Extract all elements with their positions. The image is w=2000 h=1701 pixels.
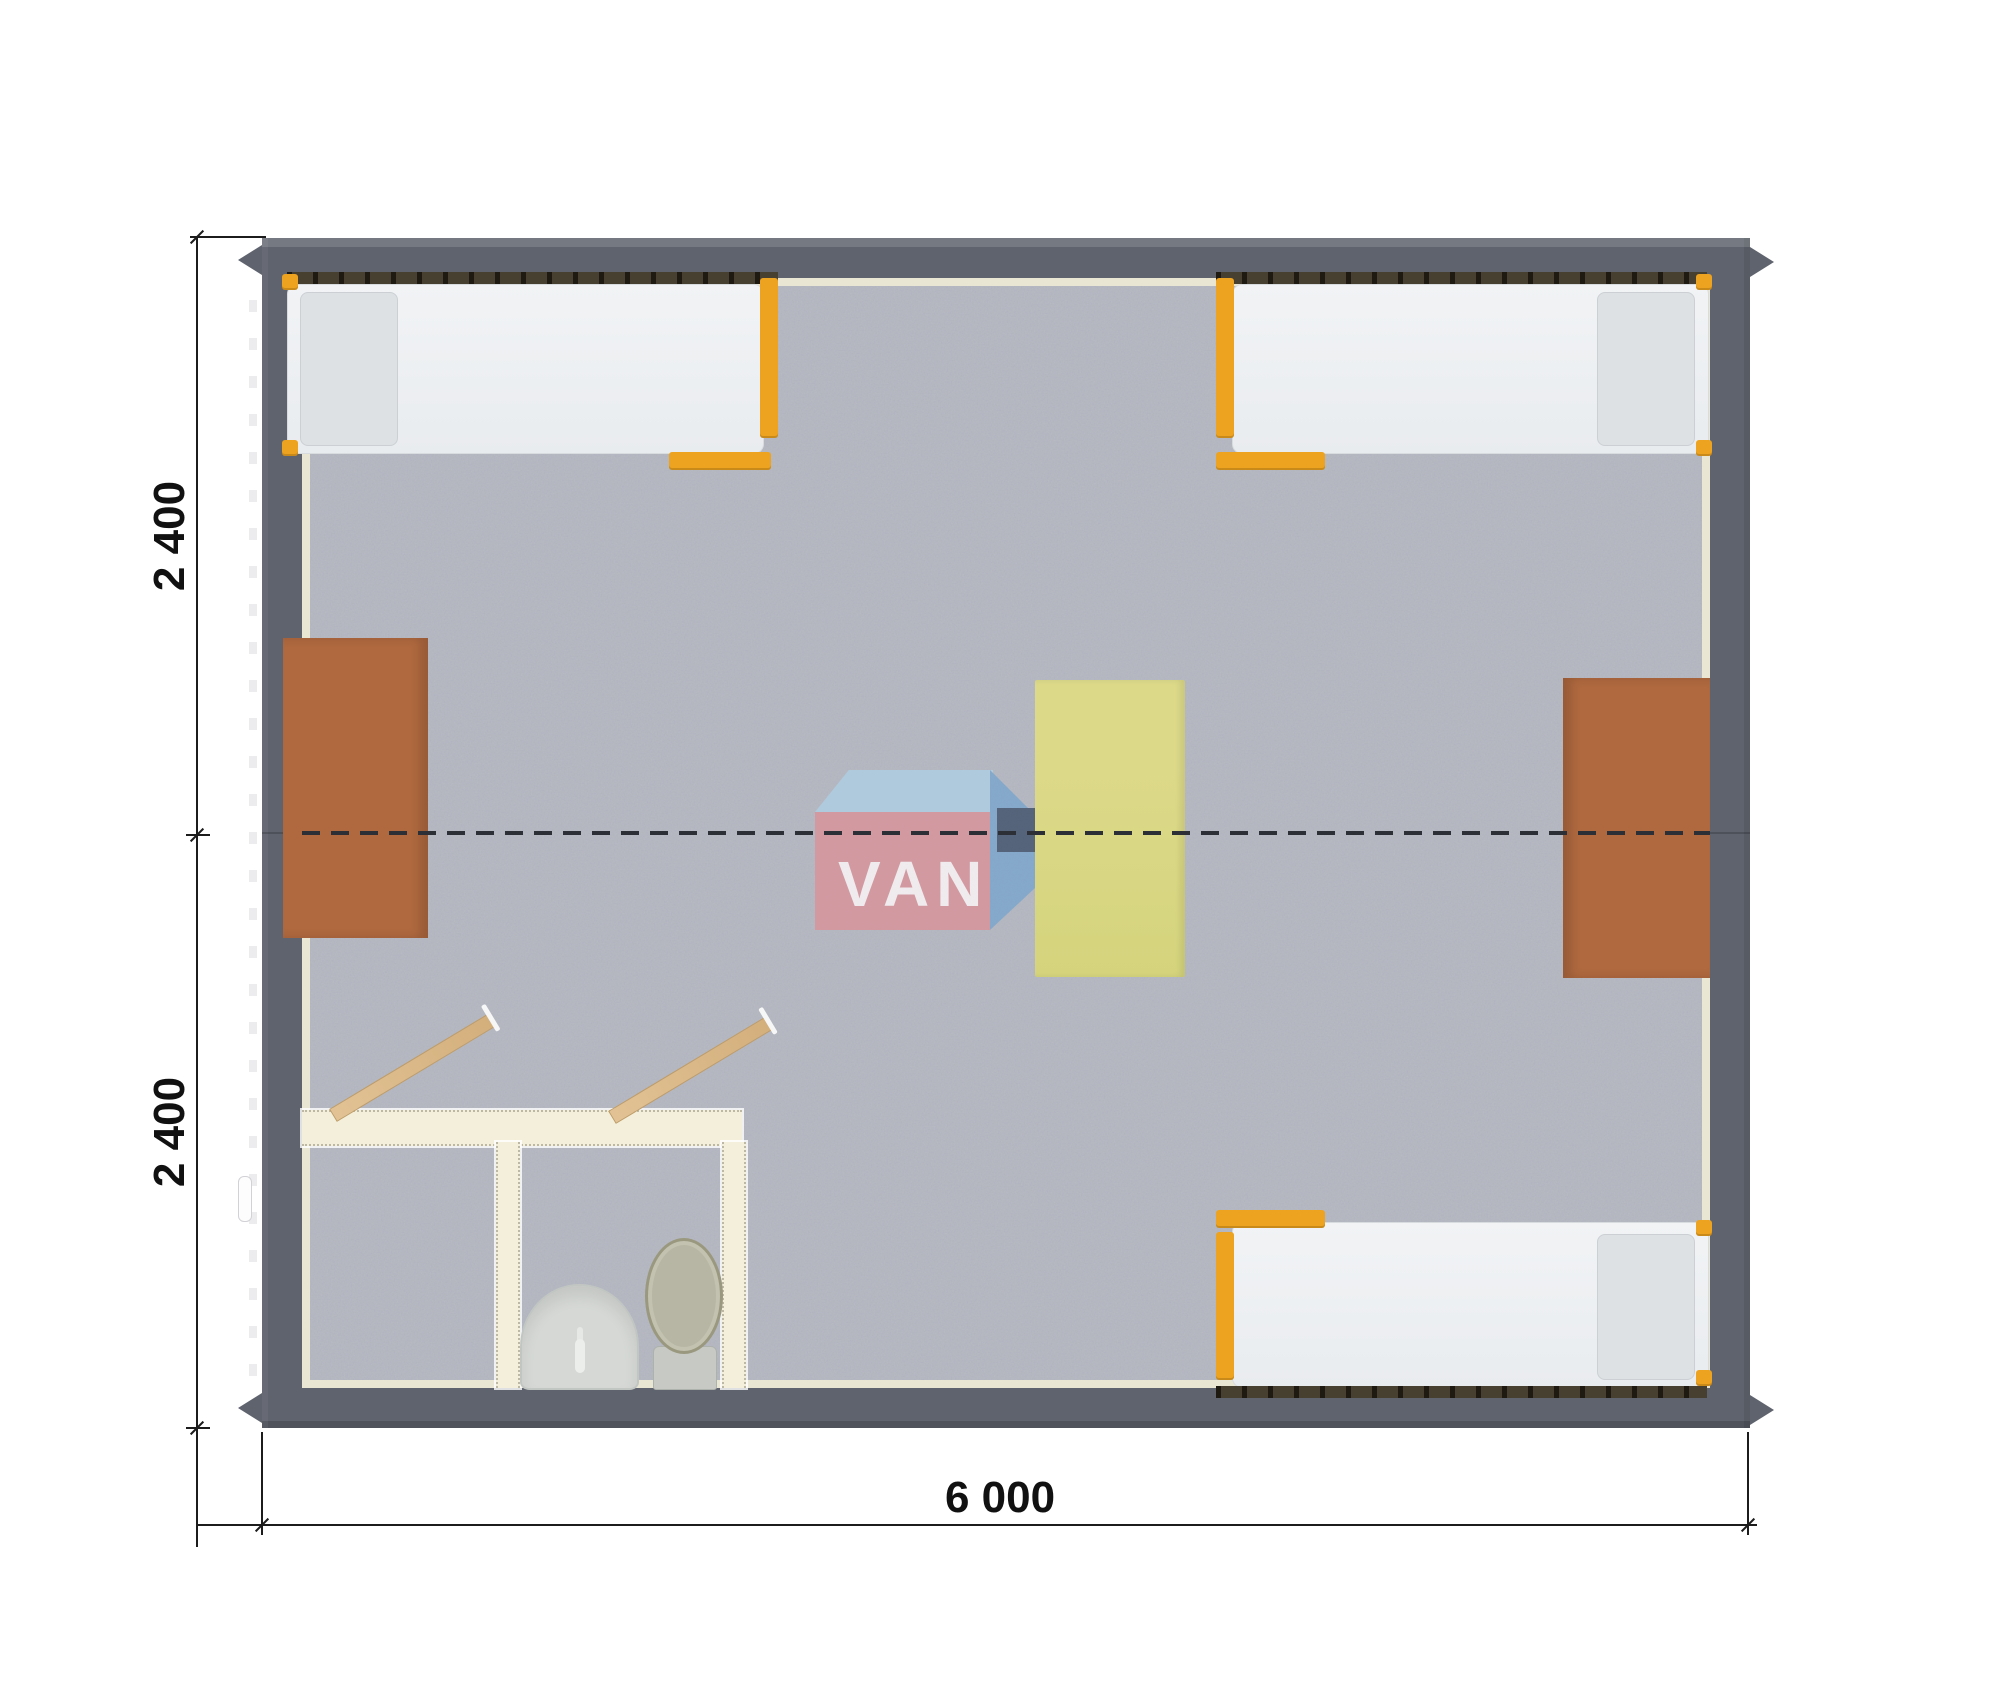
corner-marker-bottom-right bbox=[1750, 1395, 1774, 1425]
bathroom-wall-top bbox=[302, 1110, 742, 1146]
bed-frame-post bbox=[760, 278, 778, 438]
toilet-lid bbox=[645, 1238, 723, 1354]
bed-corner-stub bbox=[1696, 440, 1712, 456]
faucet-icon bbox=[575, 1339, 585, 1373]
bed-corner-stub bbox=[282, 274, 298, 290]
table-center bbox=[1035, 680, 1185, 977]
bed-head-rail bbox=[1216, 1386, 1707, 1398]
bed-frame-post bbox=[1216, 1232, 1234, 1380]
bed-frame-post bbox=[1216, 278, 1234, 438]
logo-text-van: VAN bbox=[838, 852, 989, 916]
bed-corner-stub bbox=[1696, 274, 1712, 290]
dimension-label-left-top: 2 400 bbox=[145, 456, 185, 616]
module-joint-right-wall bbox=[1710, 832, 1750, 834]
bed-corner-stub bbox=[282, 440, 298, 456]
bed-foot-rail bbox=[669, 452, 771, 470]
logo-cube bbox=[997, 808, 1037, 852]
corner-marker-top-left bbox=[238, 245, 262, 275]
desk-left bbox=[283, 638, 428, 938]
dimension-ext-corner-right bbox=[1747, 1432, 1749, 1535]
bed-pillow bbox=[1597, 1234, 1695, 1380]
dimension-ext-corner-left bbox=[261, 1432, 263, 1535]
corner-marker-bottom-left bbox=[238, 1393, 262, 1423]
bed-pillow bbox=[300, 292, 398, 446]
bathroom-wall-divider bbox=[496, 1142, 520, 1388]
desk-right bbox=[1563, 678, 1710, 978]
module-joint-dashed-line bbox=[302, 831, 1710, 835]
floor-plan-canvas: VAN DA 2 400 2 400 6 000 bbox=[0, 0, 2000, 1701]
bed-head-rail bbox=[287, 272, 778, 284]
corner-marker-top-right bbox=[1750, 247, 1774, 277]
dimension-line-horizontal bbox=[197, 1524, 1757, 1526]
entry-door-handle bbox=[238, 1176, 252, 1222]
dimension-line-vertical bbox=[196, 237, 198, 1547]
bed-foot-rail bbox=[1216, 452, 1325, 470]
bed-pillow bbox=[1597, 292, 1695, 446]
bed-corner-stub bbox=[1696, 1220, 1712, 1236]
dimension-ext-top bbox=[190, 236, 266, 238]
bed-head-rail bbox=[1216, 272, 1707, 284]
bed-corner-stub bbox=[1696, 1370, 1712, 1386]
dimension-label-left-bottom: 2 400 bbox=[145, 1052, 185, 1212]
dimension-label-bottom: 6 000 bbox=[900, 1473, 1100, 1517]
bed-foot-rail bbox=[1216, 1210, 1325, 1228]
bathroom-wall-right bbox=[722, 1142, 746, 1388]
